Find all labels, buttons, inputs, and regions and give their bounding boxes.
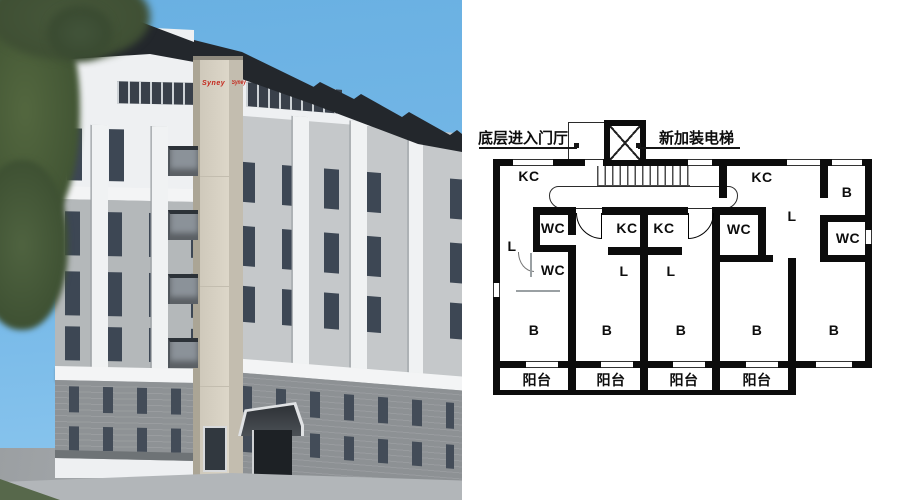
tower-seam	[200, 286, 243, 287]
room-label-wc: WC	[836, 230, 860, 246]
fixture-line	[530, 253, 532, 277]
room-label-b: B	[829, 322, 840, 338]
wall	[568, 361, 576, 395]
callout-new-elevator: 新加装电梯	[659, 127, 734, 148]
wall	[533, 245, 576, 252]
composite-image: Syney Syney	[0, 0, 900, 500]
wall	[553, 159, 585, 166]
door-arc	[688, 213, 714, 239]
room-label-b: B	[842, 184, 853, 200]
room-label-kc: KC	[518, 168, 539, 184]
callout-entry-lobby: 底层进入门厅	[478, 127, 568, 148]
corridor-outline	[549, 186, 738, 209]
wall	[865, 244, 872, 368]
pilaster	[151, 126, 168, 374]
wall	[796, 361, 816, 368]
room-label-l: L	[507, 238, 516, 254]
wall	[640, 207, 648, 361]
building-rendering: Syney Syney	[0, 0, 462, 500]
balcony-label: 阳台	[523, 372, 552, 388]
room-label-l: L	[666, 263, 675, 279]
room-label-wc: WC	[541, 220, 565, 236]
balcony	[168, 146, 198, 176]
room-label-kc: KC	[751, 169, 772, 185]
pilaster	[91, 125, 108, 373]
elevator-brand-logo-side: Syney	[232, 80, 246, 86]
wall	[640, 361, 648, 395]
tower-front-face	[200, 56, 229, 478]
room-label-l: L	[787, 208, 796, 224]
room-label-b: B	[676, 322, 687, 338]
wall	[493, 361, 526, 368]
wall	[712, 361, 720, 395]
wall	[558, 361, 601, 368]
window	[688, 159, 712, 166]
wall	[493, 159, 500, 283]
window	[513, 159, 553, 166]
window	[526, 361, 558, 368]
window	[601, 361, 633, 368]
tower-glass-door	[203, 426, 227, 472]
balcony-label: 阳台	[743, 372, 772, 388]
elevator-tower: Syney Syney	[193, 56, 243, 478]
balcony-label: 阳台	[670, 372, 699, 388]
room-label-l: L	[619, 263, 628, 279]
leader-line-entry	[479, 147, 577, 149]
wall	[788, 258, 796, 361]
window	[832, 159, 862, 166]
room-label-wc: WC	[727, 221, 751, 237]
tower-cap	[193, 56, 243, 60]
window	[816, 361, 852, 368]
entry-lobby-outline	[568, 122, 606, 160]
balcony	[168, 338, 198, 368]
wall	[493, 297, 500, 395]
leader-dot-elevator	[636, 143, 641, 148]
room-label-kc: KC	[653, 220, 674, 236]
wall	[568, 207, 576, 235]
window	[787, 159, 820, 166]
wall	[758, 207, 766, 262]
pilaster	[350, 120, 367, 371]
pilaster	[408, 125, 423, 376]
room-label-wc: WC	[541, 262, 565, 278]
leader-dot-entry	[574, 143, 579, 148]
room-label-b: B	[752, 322, 763, 338]
tower-left-shade	[193, 56, 200, 478]
balcony	[168, 274, 198, 304]
wall	[568, 250, 576, 361]
wall	[820, 166, 828, 198]
window	[865, 230, 872, 244]
window	[493, 283, 500, 297]
wall	[712, 159, 787, 166]
tower-seam	[200, 176, 243, 177]
wall	[633, 361, 673, 368]
wall	[712, 207, 720, 361]
wall	[820, 159, 832, 166]
floor-plan: 底层进入门厅 新加装电梯 KC WC L WC B KC L B KC L B …	[462, 0, 900, 500]
wall	[719, 166, 727, 198]
wall	[608, 247, 682, 255]
wall	[852, 361, 872, 368]
room-label-kc: KC	[616, 220, 637, 236]
window	[673, 361, 705, 368]
wall	[820, 255, 872, 262]
wall	[712, 255, 773, 262]
wall	[788, 361, 796, 395]
pilaster	[292, 116, 309, 367]
door-arc	[576, 213, 602, 239]
entrance-doorway	[252, 430, 292, 478]
tree-foliage-small	[48, 6, 112, 60]
leader-line-elevator	[638, 147, 740, 149]
staircase	[597, 166, 690, 186]
room-label-b: B	[529, 322, 540, 338]
tower-side-face	[229, 56, 243, 478]
tower-seam	[200, 386, 243, 387]
balcony	[168, 210, 198, 240]
balcony-label: 阳台	[597, 372, 626, 388]
elevator-brand-logo-front: Syney	[202, 80, 225, 87]
window	[746, 361, 778, 368]
fixture-line	[516, 290, 560, 292]
room-label-b: B	[602, 322, 613, 338]
wall	[602, 207, 688, 215]
